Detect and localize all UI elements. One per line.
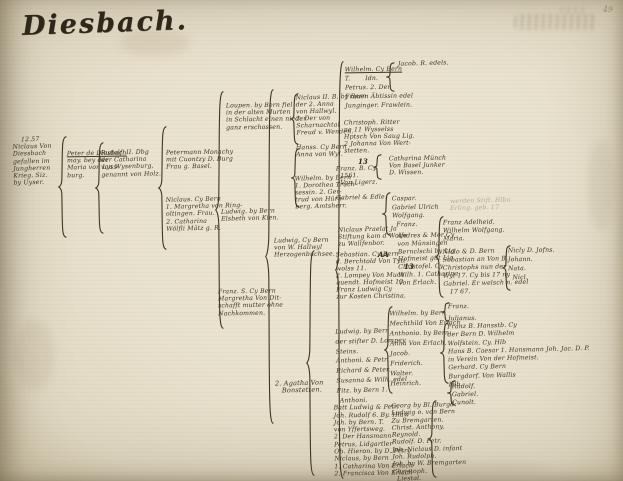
reference-marker: 13 <box>404 262 414 271</box>
grouping-brace <box>427 400 437 478</box>
grouping-brace <box>57 136 67 238</box>
entry-franz-ligerz: Franz. B. Cy 1561. Von Ligerz. <box>336 164 393 187</box>
entry-niclaus-1257: 12.57Niclaus VonDiessbachgefallen imJung… <box>12 135 63 187</box>
entry-line: D. Wissen. <box>389 169 449 177</box>
entry-catharina-muench: Catharina MünchVon Basel JunkerD. Wissen… <box>389 155 449 177</box>
grouping-brace <box>383 306 393 394</box>
page-number: 49 <box>603 5 613 14</box>
entry-line: 17 67. <box>443 287 507 297</box>
note-faint: werden Stift. HlbnErling. geb. 17 <box>450 196 538 213</box>
entry-line: Gabriel Ulrich <box>392 203 444 212</box>
entry-line: Anna von Wyl. <box>296 151 336 159</box>
entry-wilhelm-bern: Wilhelm. by Bern1. Dorothea Truch-sessin… <box>295 174 340 210</box>
grouping-brace <box>94 142 104 234</box>
entry-line: genannt von Holz. <box>101 170 165 179</box>
grouping-brace <box>372 154 382 180</box>
entry-line: Wilhelm Wolfgang. <box>443 227 503 236</box>
manuscript-page: Diesbach. 49 12.57Niclaus VonDiessbachge… <box>0 0 623 481</box>
reference-marker: AA <box>378 250 389 259</box>
grouping-brace <box>440 302 450 322</box>
entry-line: Von Ligerz. <box>336 179 392 188</box>
entry-rudolf-list: Rudolf.Gabriel.Cunolt. <box>452 383 492 408</box>
grouping-brace <box>305 250 315 476</box>
grouping-brace <box>434 216 444 298</box>
grouping-brace <box>264 89 274 424</box>
entry-adelheid: Franz Adelheid.Wilhelm Wolfgang.Maria. <box>443 219 503 244</box>
entry-line: Junginger. Frawlein. <box>345 101 407 111</box>
entry-wilhelm-cy-bern: Wilhelm. Cy BernT. Idn.Petrus. 2. DerFra… <box>345 65 408 111</box>
entry-line: Erling. geb. 17 <box>450 203 538 212</box>
entry-line: Nicly D. Jofns. <box>508 246 552 256</box>
grouping-brace <box>289 93 299 145</box>
entry-line: berg. Amtsherr. <box>295 202 339 210</box>
entry-line: zur Kosten Christina. <box>336 293 406 301</box>
entry-line: Maria. <box>443 235 503 244</box>
entry-line: Freud v. Wenden. <box>296 128 338 136</box>
paper-stain <box>14 320 54 390</box>
entry-far-right-list: Nicly D. Jofns.Johann.Nata. Nicl. <box>508 246 552 283</box>
entry-christoph-ritter: Christoph. Ritterne 11 WysselssHptsch Vo… <box>344 118 428 154</box>
entry-line: stetten. <box>344 146 428 154</box>
grouping-brace <box>290 148 300 208</box>
grouping-brace <box>157 126 167 250</box>
entry-line: Bonstetten. <box>275 387 329 396</box>
entry-line: in Schlacht einen nieder <box>226 116 294 124</box>
grouping-brace <box>501 245 511 291</box>
entry-line: Fitz. by Bern 1. <box>337 385 389 396</box>
entry-georg-list: Georg by Bl. Burgd.Ludwig o. von BernZu … <box>391 401 449 481</box>
entry-jacob-edels: Jacob. R. edels. <box>398 59 450 67</box>
entry-line: Gabriel. Er welsch n. edel <box>443 279 507 289</box>
entry-agatha-bonstetten: 2. Agatha Von Bonstetten. <box>275 379 329 395</box>
grouping-brace <box>214 91 224 329</box>
grouping-brace <box>439 322 449 384</box>
entry-niclaus-ii: Niclaus II. B. by Bernder 2. Annavon Hal… <box>295 93 338 136</box>
entry-hanss: Hanss. Cy BernAnna von Wyl. <box>296 144 336 159</box>
grouping-brace <box>446 380 456 406</box>
grouping-brace <box>381 192 391 236</box>
ink-showthrough <box>514 14 598 30</box>
grouping-brace <box>334 61 344 479</box>
entry-line: Liestal. <box>393 474 449 481</box>
entry-loupen: Loupen. by Bern fielin der alten Murteni… <box>226 102 294 132</box>
entry-line: Franz. <box>448 301 488 314</box>
grouping-brace <box>385 62 395 92</box>
reference-marker: 13 <box>358 157 368 166</box>
entry-line: Cunolt. <box>452 399 492 408</box>
entry-niclaus-praelat: Niclaus Praelat JaStiftung kam d Wolfezu… <box>338 225 404 248</box>
paper-stain <box>588 140 614 230</box>
entry-franz-b: Franz B. Hansstb. Cyder Bern D. WilhelmW… <box>447 321 561 390</box>
ink-showthrough <box>560 6 586 14</box>
paper-stain <box>120 30 190 56</box>
entry-niclo: Niclo & D. BernSebastian an Von B.Christ… <box>442 247 507 297</box>
entry-line: zu Wallfenbor. <box>338 239 404 248</box>
entry-line: Jacob. R. edels. <box>398 59 450 67</box>
entry-line: d. Berchtold Von Tytt <box>336 258 406 266</box>
entry-line: ganz erschossen. <box>226 123 294 131</box>
entry-rudolf-ii: Rudolf. II. Dbgder Catharinavon Wysenbur… <box>101 148 166 178</box>
entry-sebastian: Sebastian. Cy Bernd. Berchtold Von Tyttw… <box>336 251 407 301</box>
entry-line: Nicl. <box>508 273 552 283</box>
